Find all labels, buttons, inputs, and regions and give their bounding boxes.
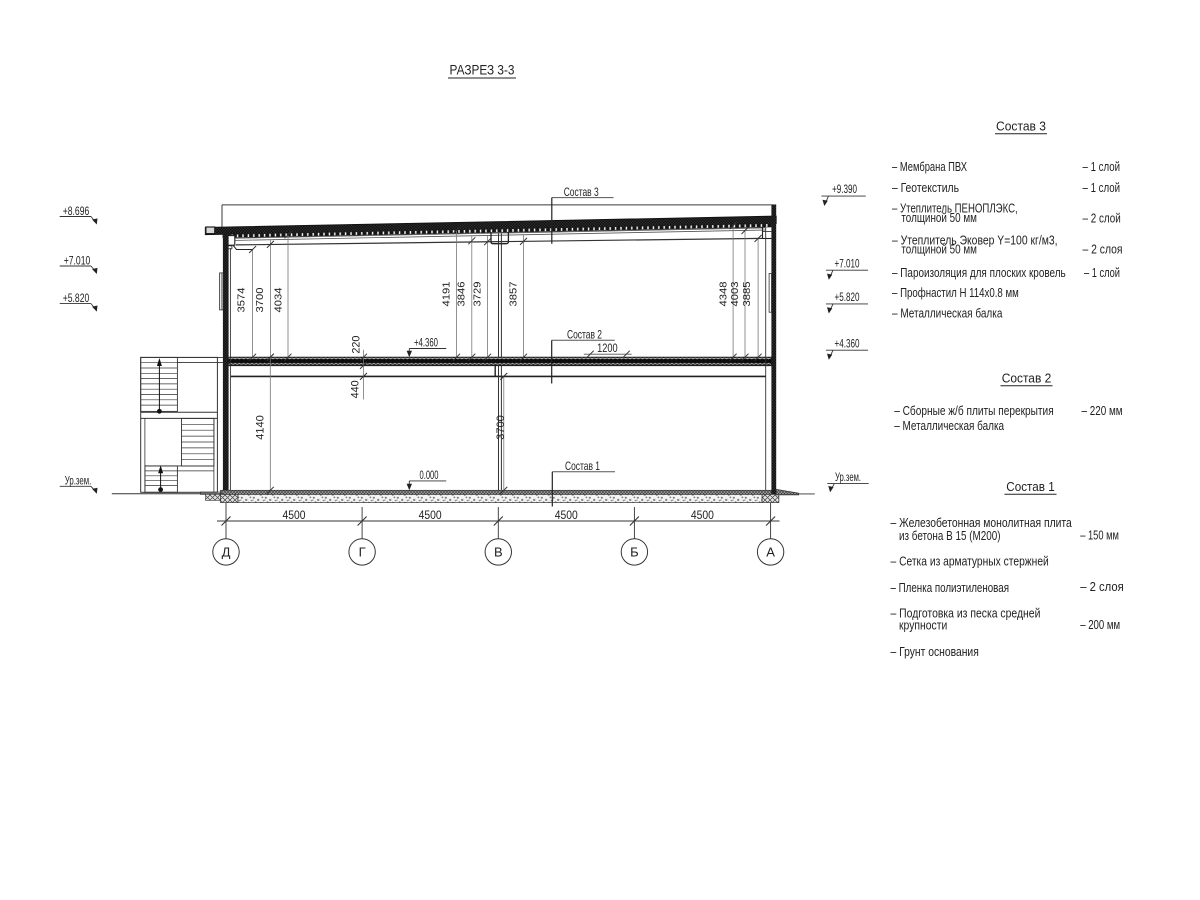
svg-text:– 1 слой: – 1 слой — [1084, 265, 1120, 280]
svg-text:– 2 слой: – 2 слой — [1083, 210, 1121, 225]
svg-text:+7.010: +7.010 — [64, 253, 91, 267]
svg-text:+4.360: +4.360 — [414, 336, 438, 350]
svg-text:– Профнастил Н 114х0.8 мм: – Профнастил Н 114х0.8 мм — [892, 285, 1019, 300]
svg-text:– Пароизоляция для плоских кро: – Пароизоляция для плоских кровель — [892, 265, 1066, 280]
svg-text:Состав 2: Состав 2 — [567, 328, 602, 342]
svg-text:3700: 3700 — [254, 287, 266, 312]
svg-text:Ур.зем.: Ур.зем. — [835, 470, 861, 484]
svg-text:Состав 1: Состав 1 — [565, 459, 600, 473]
svg-text:В: В — [494, 545, 503, 560]
svg-text:3885: 3885 — [741, 281, 753, 306]
svg-text:толщиной 50 мм: толщиной 50 мм — [901, 210, 977, 225]
svg-text:440: 440 — [349, 380, 361, 398]
svg-text:Состав 2: Состав 2 — [1002, 371, 1052, 386]
svg-text:РАЗРЕЗ 3-3: РАЗРЕЗ 3-3 — [450, 63, 515, 78]
svg-text:– 1 слой: – 1 слой — [1083, 180, 1121, 195]
svg-text:0.000: 0.000 — [420, 468, 439, 482]
svg-text:– Металлическая балка: – Металлическая балка — [892, 306, 1003, 321]
svg-text:Состав 3: Состав 3 — [996, 119, 1046, 134]
svg-text:– 220 мм: – 220 мм — [1082, 403, 1123, 418]
svg-text:– 2 слоя: – 2 слоя — [1083, 242, 1123, 257]
svg-text:– 150 мм: – 150 мм — [1080, 528, 1119, 543]
svg-text:4034: 4034 — [273, 287, 285, 312]
svg-text:3857: 3857 — [507, 281, 519, 306]
svg-text:4500: 4500 — [691, 508, 714, 522]
svg-text:– Металлическая балка: – Металлическая балка — [894, 418, 1004, 433]
svg-text:+5.820: +5.820 — [63, 291, 90, 305]
svg-text:3574: 3574 — [236, 287, 248, 312]
svg-text:1200: 1200 — [597, 343, 618, 355]
svg-text:+7.010: +7.010 — [835, 256, 860, 270]
svg-text:– Сборные ж/б плиты перекрытия: – Сборные ж/б плиты перекрытия — [894, 403, 1053, 418]
svg-text:– Грунт основания: – Грунт основания — [891, 644, 979, 659]
svg-text:Г: Г — [359, 545, 366, 560]
svg-text:+9.390: +9.390 — [832, 182, 857, 196]
svg-text:толщиной 50 мм: толщиной 50 мм — [901, 242, 977, 257]
svg-text:из бетона В 15 (М200): из бетона В 15 (М200) — [899, 528, 1001, 543]
svg-text:– Мембрана ПВХ: – Мембрана ПВХ — [892, 159, 967, 174]
svg-text:Состав 3: Состав 3 — [564, 185, 599, 199]
svg-text:– Сетка из арматурных стержней: – Сетка из арматурных стержней — [891, 553, 1049, 568]
svg-text:4500: 4500 — [283, 508, 306, 522]
svg-text:220: 220 — [351, 336, 363, 354]
svg-text:Д: Д — [222, 545, 231, 560]
svg-text:– Геотекстиль: – Геотекстиль — [892, 180, 959, 195]
svg-text:Ур.зем.: Ур.зем. — [65, 473, 92, 487]
svg-text:4003: 4003 — [729, 281, 741, 306]
svg-text:Б: Б — [630, 545, 639, 560]
svg-text:3729: 3729 — [471, 281, 483, 306]
svg-text:4191: 4191 — [441, 281, 453, 306]
svg-text:4348: 4348 — [717, 281, 729, 306]
svg-text:+4.360: +4.360 — [835, 337, 860, 351]
svg-text:А: А — [766, 545, 775, 560]
svg-text:Состав 1: Состав 1 — [1006, 479, 1054, 494]
svg-text:– Пленка полиэтиленовая: – Пленка полиэтиленовая — [891, 580, 1010, 595]
svg-text:4500: 4500 — [419, 508, 442, 522]
svg-text:4500: 4500 — [555, 508, 578, 522]
svg-text:– 1 слой: – 1 слой — [1083, 159, 1121, 174]
svg-text:3846: 3846 — [456, 281, 468, 306]
svg-text:+5.820: +5.820 — [835, 290, 860, 304]
svg-text:– 200 мм: – 200 мм — [1080, 617, 1120, 632]
svg-text:крупности: крупности — [899, 618, 947, 633]
svg-text:– 2 слоя: – 2 слоя — [1080, 579, 1124, 594]
svg-text:4140: 4140 — [254, 415, 266, 440]
svg-text:3700: 3700 — [495, 415, 507, 440]
svg-text:+8.696: +8.696 — [63, 204, 90, 218]
